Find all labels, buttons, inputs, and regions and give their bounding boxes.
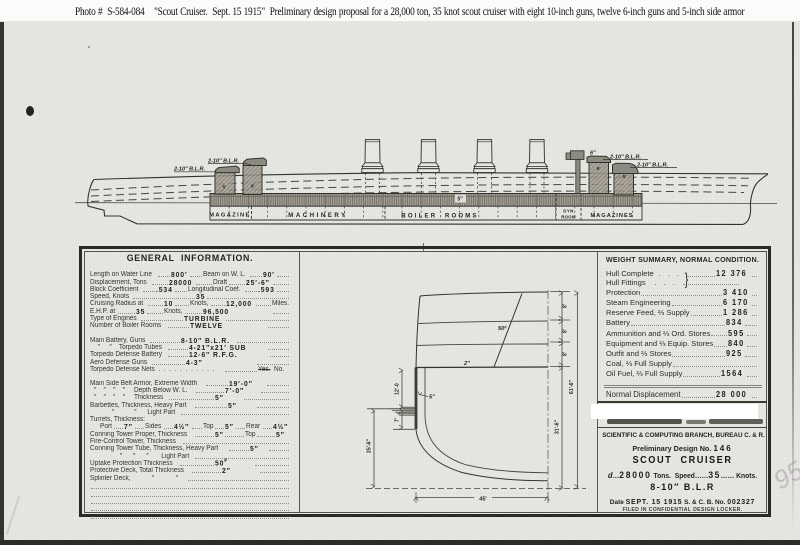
svg-text:MAGAZINES: MAGAZINES <box>590 213 633 219</box>
svg-text:8′: 8′ <box>563 328 569 333</box>
svg-text:31′-6″: 31′-6″ <box>555 419 561 434</box>
svg-text:BOILER ROOMS: BOILER ROOMS <box>401 213 478 219</box>
svg-text:12′-0: 12′-0 <box>395 383 401 395</box>
svg-text:8′: 8′ <box>563 303 569 308</box>
svg-text:MAGAZINE: MAGAZINE <box>209 213 251 219</box>
svg-text:ROOM: ROOM <box>561 215 576 220</box>
svg-text:DYN: DYN <box>563 209 573 214</box>
svg-text:5″: 5″ <box>429 395 435 401</box>
svg-text:2″: 2″ <box>463 361 470 367</box>
svg-text:8′: 8′ <box>563 351 569 356</box>
svg-text:6″: 6″ <box>590 151 596 157</box>
svg-text:25′-6″: 25′-6″ <box>367 438 373 453</box>
svg-text:7′: 7′ <box>395 417 401 422</box>
svg-text:5″: 5″ <box>457 197 463 203</box>
svg-text:MACHINERY: MACHINERY <box>288 213 348 219</box>
svg-text:50#: 50# <box>498 325 507 333</box>
svg-text:45′: 45′ <box>479 497 487 503</box>
svg-text:61′-6″: 61′-6″ <box>569 379 575 394</box>
